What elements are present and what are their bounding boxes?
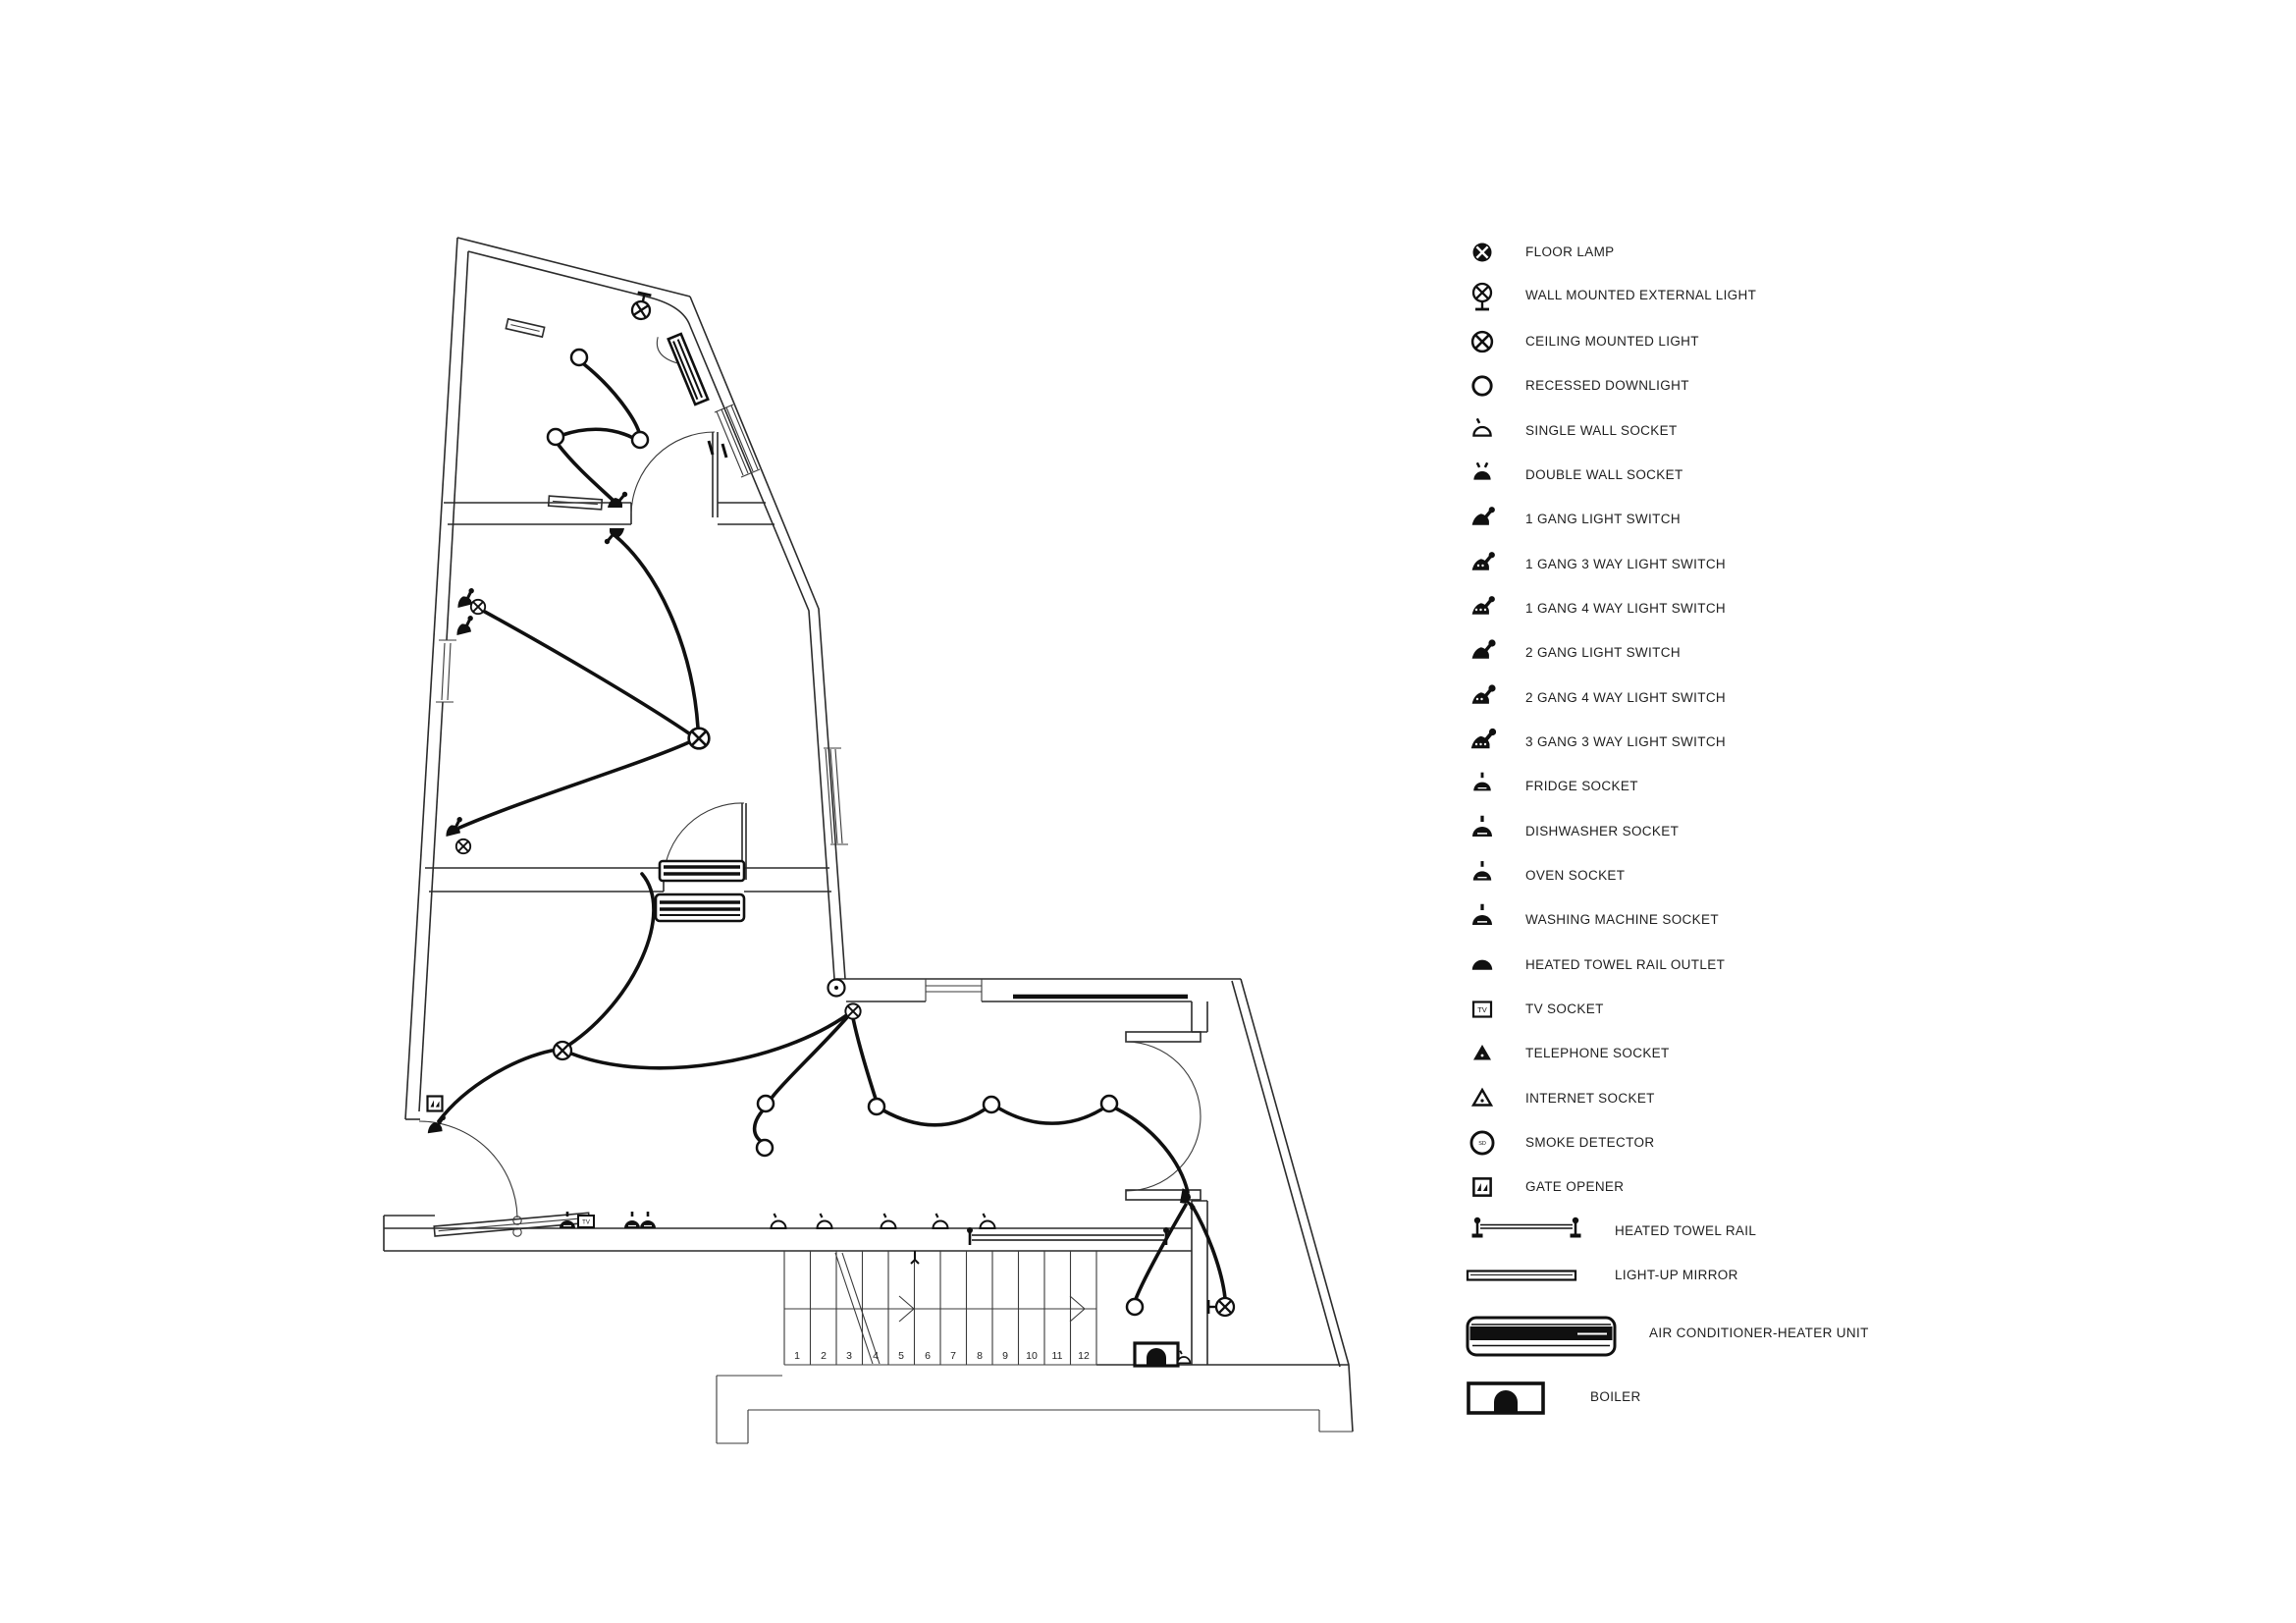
stair-number: 12 <box>1078 1350 1090 1362</box>
air-conditioner-heater-unit <box>656 861 744 921</box>
washing-machine-socket-icon <box>1465 902 1500 938</box>
legend-label: RECESSED DOWNLIGHT <box>1525 378 1689 393</box>
legend-label: CEILING MOUNTED LIGHT <box>1525 334 1699 349</box>
stair-number: 10 <box>1026 1350 1038 1362</box>
recessed-downlight-icon <box>571 350 587 365</box>
stair-number: 1 <box>794 1350 800 1362</box>
heated-towel-rail-icon <box>1465 1214 1588 1249</box>
svg-text:SD: SD <box>1478 1141 1486 1147</box>
recessed-downlight-icon <box>869 1099 884 1114</box>
stair-number: 7 <box>950 1350 956 1362</box>
internet-socket-icon <box>1465 1081 1500 1116</box>
smoke-detector-icon <box>828 980 845 997</box>
legend-label: 3 GANG 3 WAY LIGHT SWITCH <box>1525 734 1726 749</box>
recessed-downlight-icon <box>984 1097 999 1112</box>
svg-text:TV: TV <box>1477 1005 1487 1014</box>
legend-label: FLOOR LAMP <box>1525 244 1615 259</box>
air-conditioner-heater-unit-icon <box>1465 1313 1618 1360</box>
legend-label: TV SOCKET <box>1525 1001 1604 1016</box>
legend-label: INTERNET SOCKET <box>1525 1091 1655 1106</box>
legend-label: DISHWASHER SOCKET <box>1525 824 1679 839</box>
smoke-detector-icon: SD <box>1465 1125 1500 1161</box>
fridge-socket-icon <box>1465 769 1500 804</box>
legend-label: 1 GANG 3 WAY LIGHT SWITCH <box>1525 557 1726 571</box>
stair-number: 5 <box>898 1350 904 1362</box>
light-up-mirror-icon <box>1465 1258 1582 1293</box>
legend-label: BOILER <box>1590 1389 1641 1404</box>
2-gang-4-way-light-switch-icon <box>1465 680 1500 716</box>
doors <box>419 432 1201 1236</box>
floor-plan-drawing: 1 2 3 4 5 6 7 8 9 10 11 12 <box>0 0 2296 1623</box>
3-gang-3-way-light-switch-icon <box>1465 725 1500 760</box>
1-gang-4-way-light-switch-icon <box>1465 591 1500 626</box>
gate-opener-icon <box>428 1097 443 1111</box>
recessed-downlight-icon <box>548 429 563 445</box>
legend-label: DOUBLE WALL SOCKET <box>1525 467 1683 482</box>
legend-label: 2 GANG LIGHT SWITCH <box>1525 645 1681 660</box>
legend-label: 1 GANG 4 WAY LIGHT SWITCH <box>1525 601 1726 616</box>
wall-socket-icon <box>934 1214 948 1228</box>
legend-label: 1 GANG LIGHT SWITCH <box>1525 512 1681 526</box>
air-conditioner-unit <box>654 329 708 410</box>
legend-label: GATE OPENER <box>1525 1179 1624 1194</box>
light-up-mirror <box>506 319 544 337</box>
legend-label: WALL MOUNTED EXTERNAL LIGHT <box>1525 288 1756 302</box>
svg-text:TV: TV <box>582 1220 590 1226</box>
1-gang-3-way-light-switch-icon <box>1465 547 1500 582</box>
legend-label: LIGHT-UP MIRROR <box>1615 1268 1738 1282</box>
stair-number: 9 <box>1002 1350 1008 1362</box>
stair-number: 6 <box>925 1350 931 1362</box>
legend-label: AIR CONDITIONER-HEATER UNIT <box>1649 1325 1869 1340</box>
floor-lamp-icon <box>1465 235 1500 270</box>
wall-mounted-external-light-icon <box>1465 276 1500 315</box>
wall-socket-icon <box>981 1214 995 1228</box>
2-gang-light-switch-icon <box>1465 635 1500 671</box>
outer-walls <box>405 238 1353 1443</box>
dishwasher-socket-icon <box>1465 814 1500 849</box>
wall-mounted-external-light-icon <box>1208 1298 1234 1316</box>
wall-mounted-external-light-icon <box>630 293 653 321</box>
recessed-downlight-icon <box>1101 1096 1117 1111</box>
recessed-downlight-icon <box>1465 368 1500 404</box>
wall-socket-icon <box>772 1214 786 1228</box>
legend-label: HEATED TOWEL RAIL OUTLET <box>1525 957 1725 972</box>
stair-numbers: 1 2 3 4 5 6 7 8 9 10 11 12 <box>794 1350 1090 1362</box>
stair-number: 4 <box>873 1350 879 1362</box>
recessed-downlight-icon <box>757 1140 773 1156</box>
tv-socket-icon: TV <box>1465 992 1500 1027</box>
wall-socket-icon <box>818 1214 832 1228</box>
single-wall-socket-icon <box>1465 413 1500 449</box>
double-wall-socket-icon <box>1465 458 1500 493</box>
light-switch-icon <box>454 615 477 635</box>
tv-socket-icon: TV <box>578 1216 594 1227</box>
stair-number: 11 <box>1052 1350 1063 1362</box>
ceiling-mounted-light-icon <box>689 729 710 749</box>
wall-socket-icon <box>640 1212 656 1228</box>
stair-number: 2 <box>821 1350 827 1362</box>
wall-socket-icon <box>624 1212 640 1228</box>
ceiling-mounted-light-icon <box>845 1003 860 1018</box>
legend-label: FRIDGE SOCKET <box>1525 779 1638 793</box>
electrical-floor-plan-page: 1 2 3 4 5 6 7 8 9 10 11 12 <box>0 0 2296 1623</box>
legend-label: SMOKE DETECTOR <box>1525 1135 1654 1150</box>
legend-label: SINGLE WALL SOCKET <box>1525 423 1678 438</box>
electrical-symbols: TV <box>426 293 1234 1364</box>
ceiling-mounted-light-icon <box>456 839 470 853</box>
recessed-downlight-icon <box>758 1096 774 1111</box>
oven-socket-icon <box>1465 858 1500 893</box>
ceiling-mounted-light-icon <box>471 600 485 614</box>
boiler <box>1135 1343 1178 1366</box>
legend-label: WASHING MACHINE SOCKET <box>1525 912 1719 927</box>
telephone-socket-icon <box>1465 1036 1500 1071</box>
ceiling-mounted-light-icon <box>554 1042 571 1059</box>
ceiling-mounted-light-icon <box>1465 324 1500 359</box>
wall-socket-icon <box>881 1214 896 1228</box>
gate-opener-icon <box>1465 1169 1500 1205</box>
1-gang-light-switch-icon <box>1465 502 1500 537</box>
stair-number: 8 <box>977 1350 983 1362</box>
legend-label: OVEN SOCKET <box>1525 868 1625 883</box>
stairs: 1 2 3 4 5 6 7 8 9 10 11 12 <box>784 1251 1096 1365</box>
legend-label: 2 GANG 4 WAY LIGHT SWITCH <box>1525 690 1726 705</box>
recessed-downlight-icon <box>632 432 648 448</box>
heated-towel-rail-outlet-icon <box>1465 947 1500 983</box>
recessed-downlight-icon <box>1127 1299 1143 1315</box>
stair-number: 3 <box>846 1350 852 1362</box>
legend-label: TELEPHONE SOCKET <box>1525 1046 1670 1060</box>
boiler-icon <box>1465 1378 1547 1419</box>
legend-label: HEATED TOWEL RAIL <box>1615 1223 1756 1238</box>
heated-towel-rail <box>967 1227 1169 1245</box>
